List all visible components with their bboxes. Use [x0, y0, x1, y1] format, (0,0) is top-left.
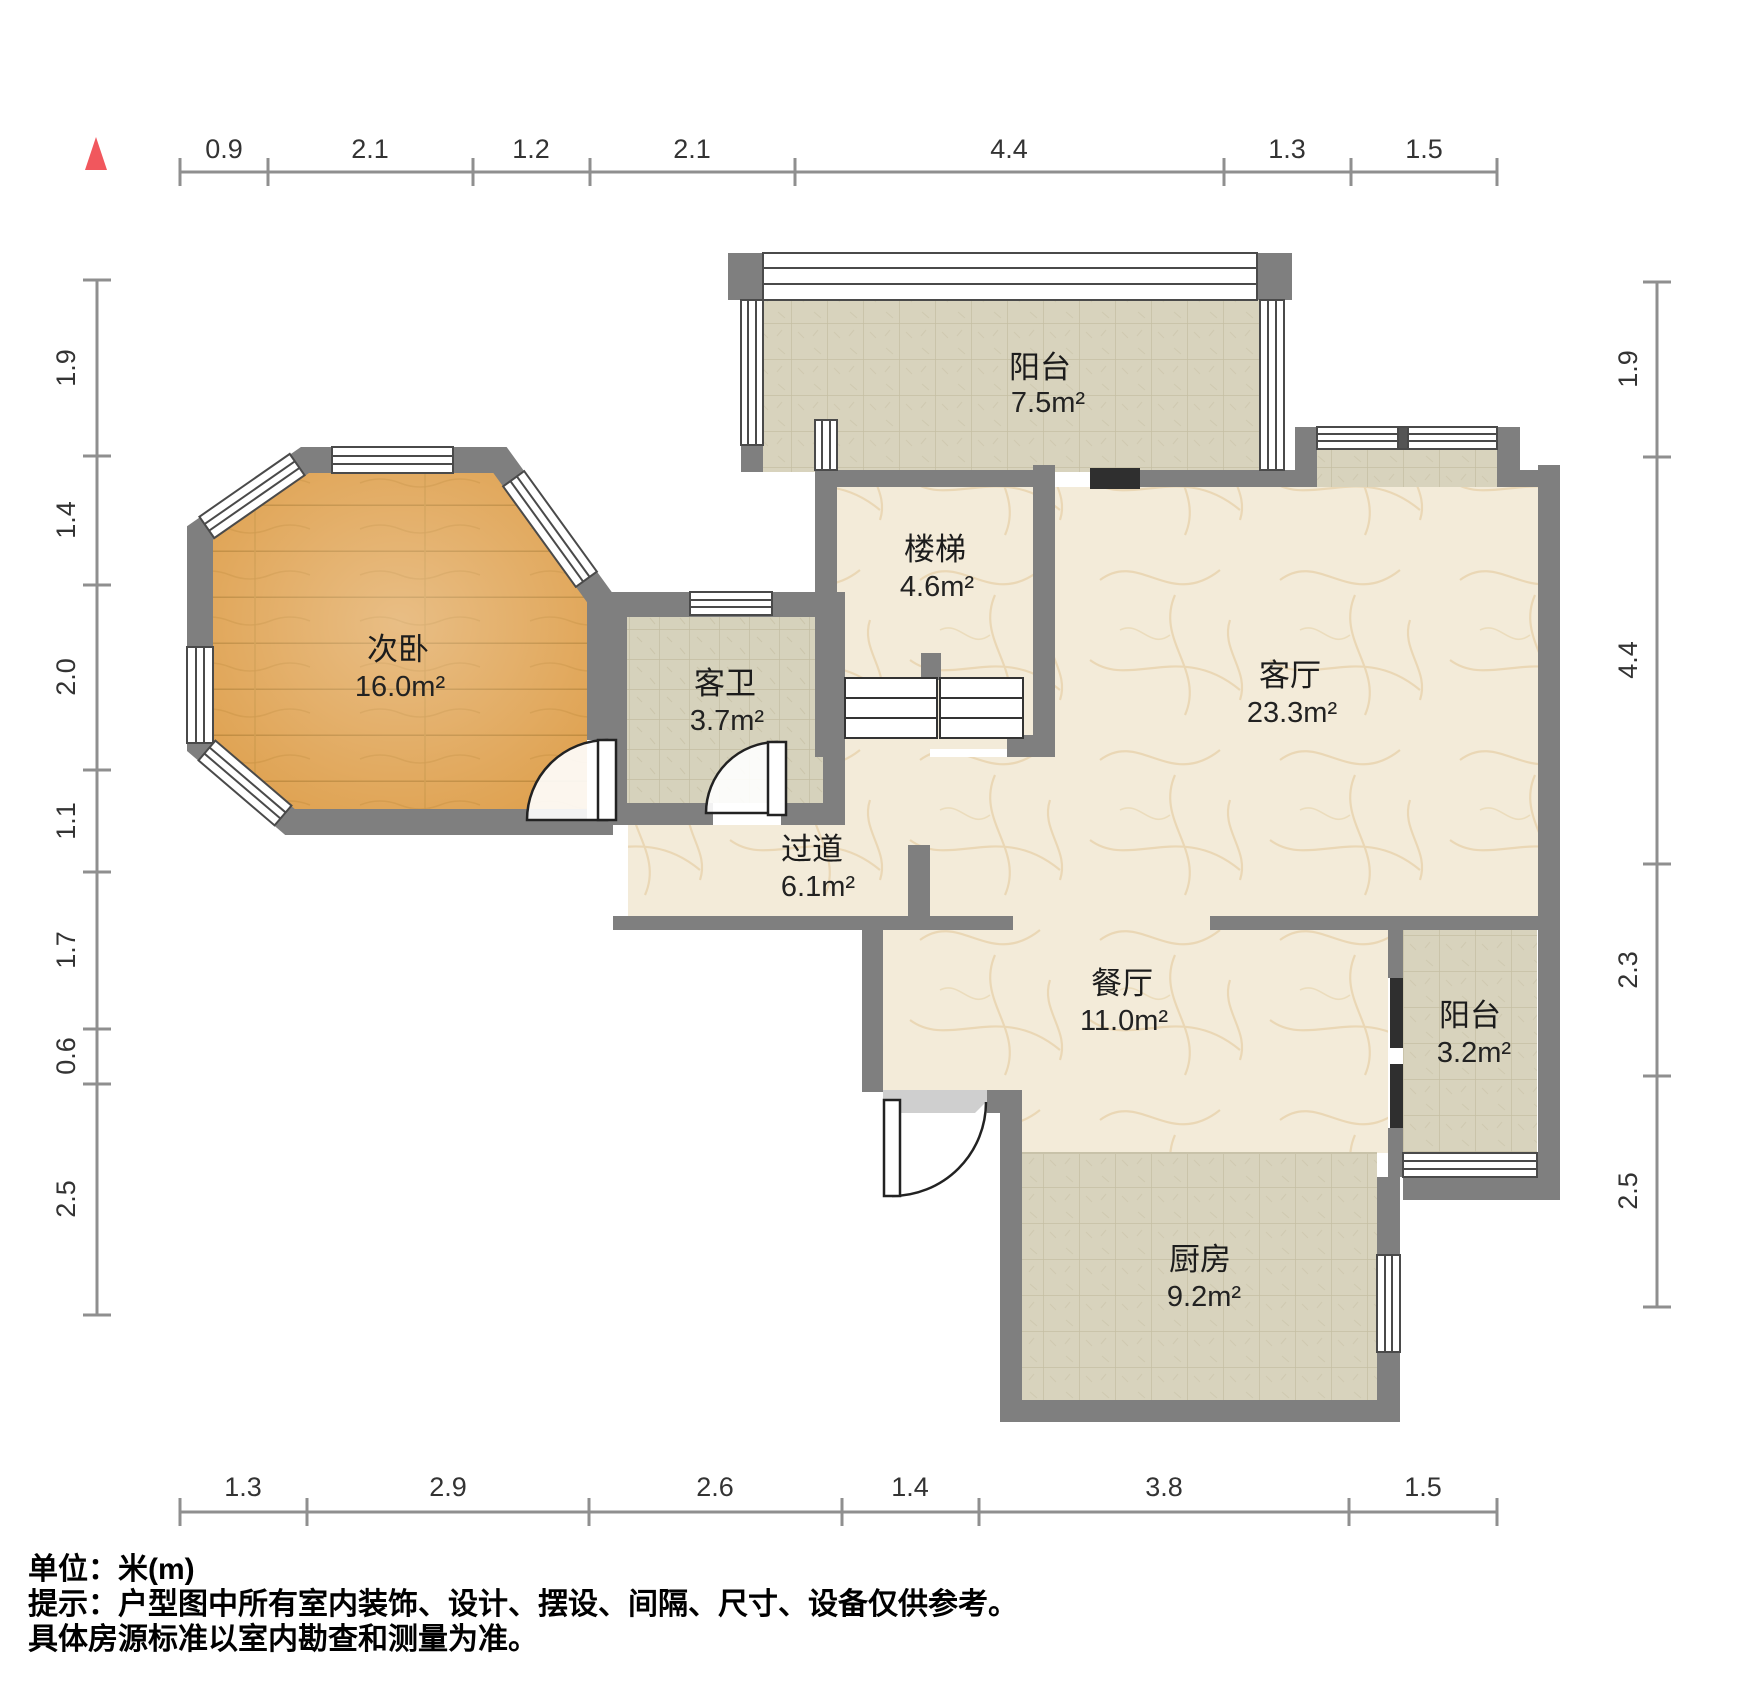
area-balcony-right: 3.2m²: [1437, 1037, 1511, 1069]
dim-bottom-1: 2.9: [429, 1472, 467, 1502]
dim-right-1: 4.4: [1613, 641, 1643, 679]
window-bay: [1317, 427, 1497, 449]
dim-bottom-3: 1.4: [891, 1472, 929, 1502]
label-kitchen: 厨房: [1169, 1242, 1231, 1277]
window-bathroom: [690, 592, 772, 615]
dim-top-5: 1.3: [1268, 134, 1306, 164]
label-balcony-right: 阳台: [1439, 998, 1501, 1033]
area-balcony-top: 7.5m²: [1011, 387, 1085, 419]
stair-treads: [845, 678, 1023, 738]
footer-notes: 单位：米(m) 提示：户型图中所有室内装饰、设计、摆设、间隔、尺寸、设备仅供参考…: [28, 1552, 1018, 1657]
label-bedroom: 次卧: [367, 632, 429, 667]
disclaimer-line2: 具体房源标准以室内勘查和测量为准。: [28, 1622, 1018, 1657]
label-balcony-top: 阳台: [1009, 350, 1071, 385]
ruler-top-labels: 0.9 2.1 1.2 2.1 4.4 1.3 1.5: [205, 134, 1443, 164]
area-bathroom: 3.7m²: [690, 705, 764, 737]
area-stairs: 4.6m²: [900, 571, 974, 603]
area-dining: 11.0m²: [1080, 1005, 1168, 1037]
dim-top-0: 0.9: [205, 134, 243, 164]
dim-top-4: 4.4: [990, 134, 1028, 164]
area-living: 23.3m²: [1247, 697, 1338, 729]
label-living: 客厅: [1259, 658, 1321, 693]
ruler-bottom: [180, 1498, 1497, 1526]
label-hallway: 过道: [781, 832, 843, 867]
ruler-right: [1643, 282, 1671, 1307]
window-kitchen: [1377, 1255, 1400, 1352]
entry-door: [884, 1100, 986, 1196]
balcony-top-sliding-door: [1090, 468, 1140, 489]
area-hallway: 6.1m²: [781, 871, 855, 903]
north-indicator-icon: [85, 137, 107, 170]
dim-bottom-0: 1.3: [224, 1472, 262, 1502]
ruler-left-labels: 1.9 1.4 2.0 1.1 1.7 0.6 2.5: [51, 349, 81, 1218]
window-balcony-left: [741, 300, 763, 445]
window-stairs-corner: [815, 420, 837, 470]
area-kitchen: 9.2m²: [1167, 1281, 1241, 1313]
dim-left-1: 1.4: [51, 501, 81, 539]
area-bedroom: 16.0m²: [355, 671, 446, 703]
dim-left-5: 0.6: [51, 1037, 81, 1075]
ruler-bottom-labels: 1.3 2.9 2.6 1.4 3.8 1.5: [224, 1472, 1442, 1502]
dim-top-1: 2.1: [351, 134, 389, 164]
dim-left-2: 2.0: [51, 658, 81, 696]
dim-right-3: 2.5: [1613, 1172, 1643, 1210]
window-balcony-top: [763, 253, 1257, 300]
dim-bottom-5: 1.5: [1404, 1472, 1442, 1502]
dim-top-6: 1.5: [1405, 134, 1443, 164]
dim-left-0: 1.9: [51, 349, 81, 387]
unit-note: 单位：米(m): [28, 1552, 1018, 1587]
window-bedroom-west: [187, 647, 213, 743]
dim-bottom-4: 3.8: [1145, 1472, 1183, 1502]
ruler-left: [83, 280, 111, 1315]
dim-top-2: 1.2: [512, 134, 550, 164]
dim-top-3: 2.1: [673, 134, 711, 164]
floor-plan: 0.9 2.1 1.2 2.1 4.4 1.3 1.5 1.3 2.9 2.6 …: [0, 0, 1750, 1702]
label-bathroom: 客卫: [694, 666, 756, 701]
dim-bottom-2: 2.6: [696, 1472, 734, 1502]
ruler-right-labels: 1.9 4.4 2.3 2.5: [1613, 350, 1643, 1210]
dim-right-0: 1.9: [1613, 350, 1643, 388]
dim-left-3: 1.1: [51, 802, 81, 840]
window-balcony-right: [1260, 300, 1284, 470]
window-balcony-right-sill: [1403, 1153, 1537, 1177]
balcony-right-sliding-door: [1390, 978, 1403, 1128]
dim-left-6: 2.5: [51, 1180, 81, 1218]
floor-bay-sill: [1317, 449, 1497, 487]
label-dining: 餐厅: [1091, 966, 1153, 1001]
disclaimer-line1: 提示：户型图中所有室内装饰、设计、摆设、间隔、尺寸、设备仅供参考。: [28, 1587, 1018, 1622]
window-bedroom-top: [332, 447, 453, 473]
label-stairs: 楼梯: [904, 532, 966, 567]
dim-left-4: 1.7: [51, 931, 81, 969]
dim-right-2: 2.3: [1613, 951, 1643, 989]
